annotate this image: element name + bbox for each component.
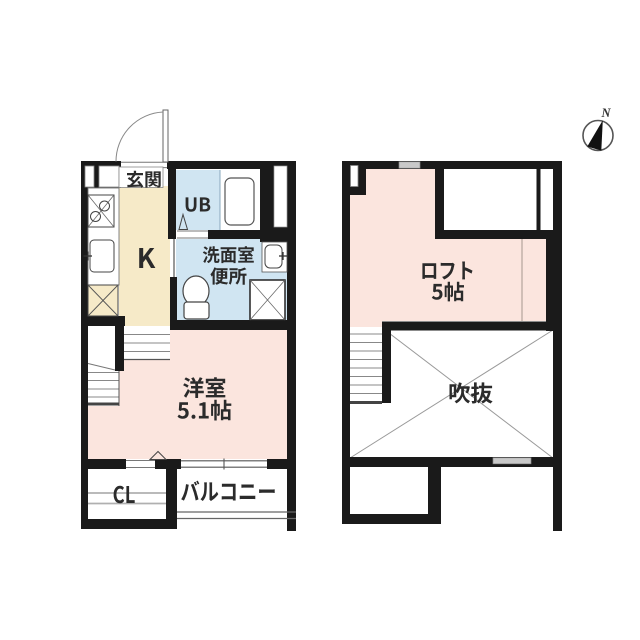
- svg-text:N: N: [601, 106, 612, 120]
